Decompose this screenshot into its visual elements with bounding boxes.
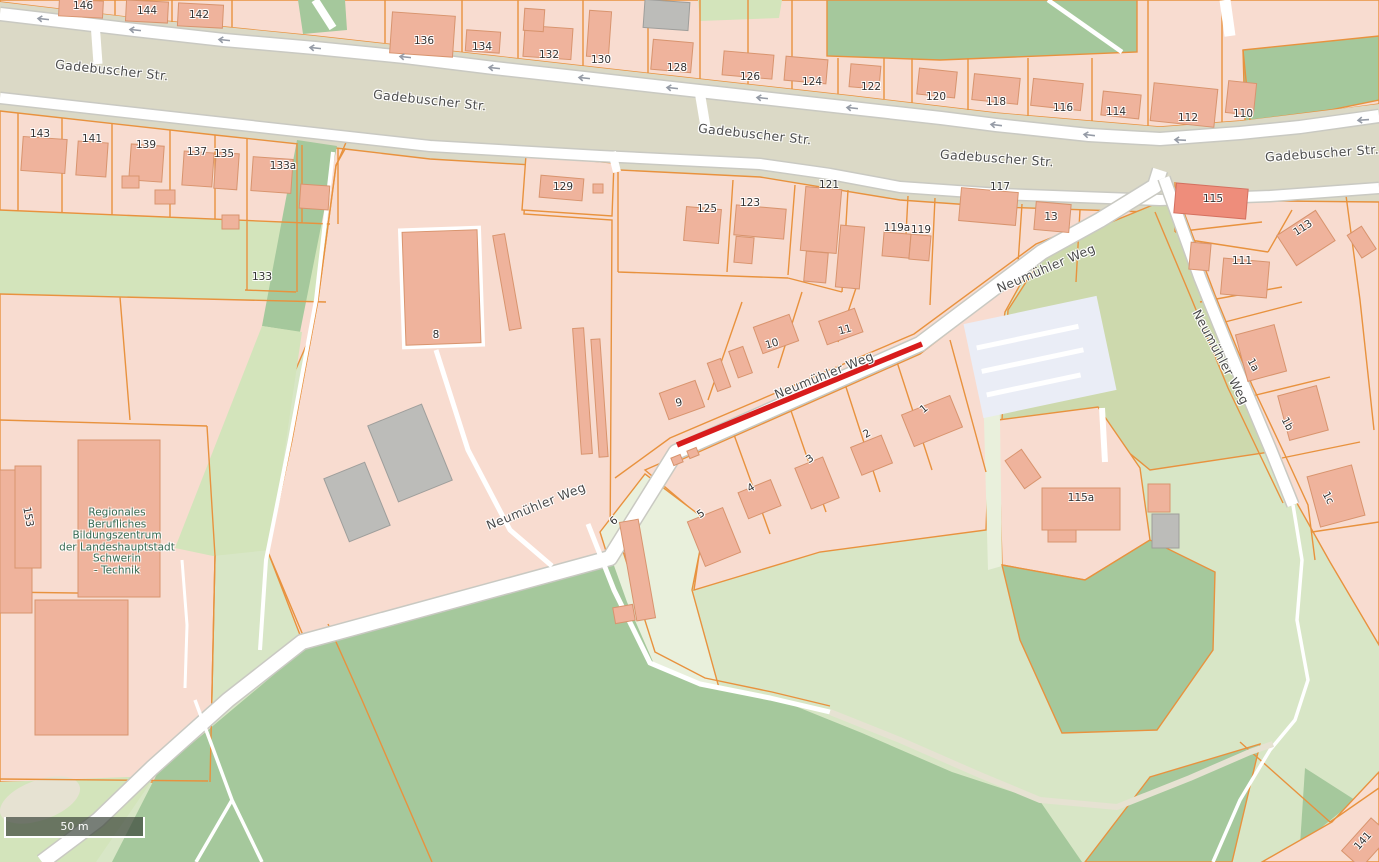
driveway-stub	[1225, 0, 1230, 36]
building-8	[402, 230, 481, 346]
driveway-stub	[700, 94, 706, 130]
scale-bar: 50 m	[4, 817, 145, 838]
driveway-stub	[1102, 408, 1105, 462]
building-115	[1174, 183, 1248, 219]
scale-bar-text: 50 m	[60, 821, 88, 832]
driveway-stub	[612, 152, 617, 172]
driveway-stub	[95, 22, 98, 64]
map-base-layer	[0, 0, 1379, 862]
school-building	[78, 440, 160, 597]
map-canvas[interactable]: Gadebuscher Str.Gadebuscher Str.Gadebusc…	[0, 0, 1379, 862]
grass-area	[698, 0, 782, 21]
